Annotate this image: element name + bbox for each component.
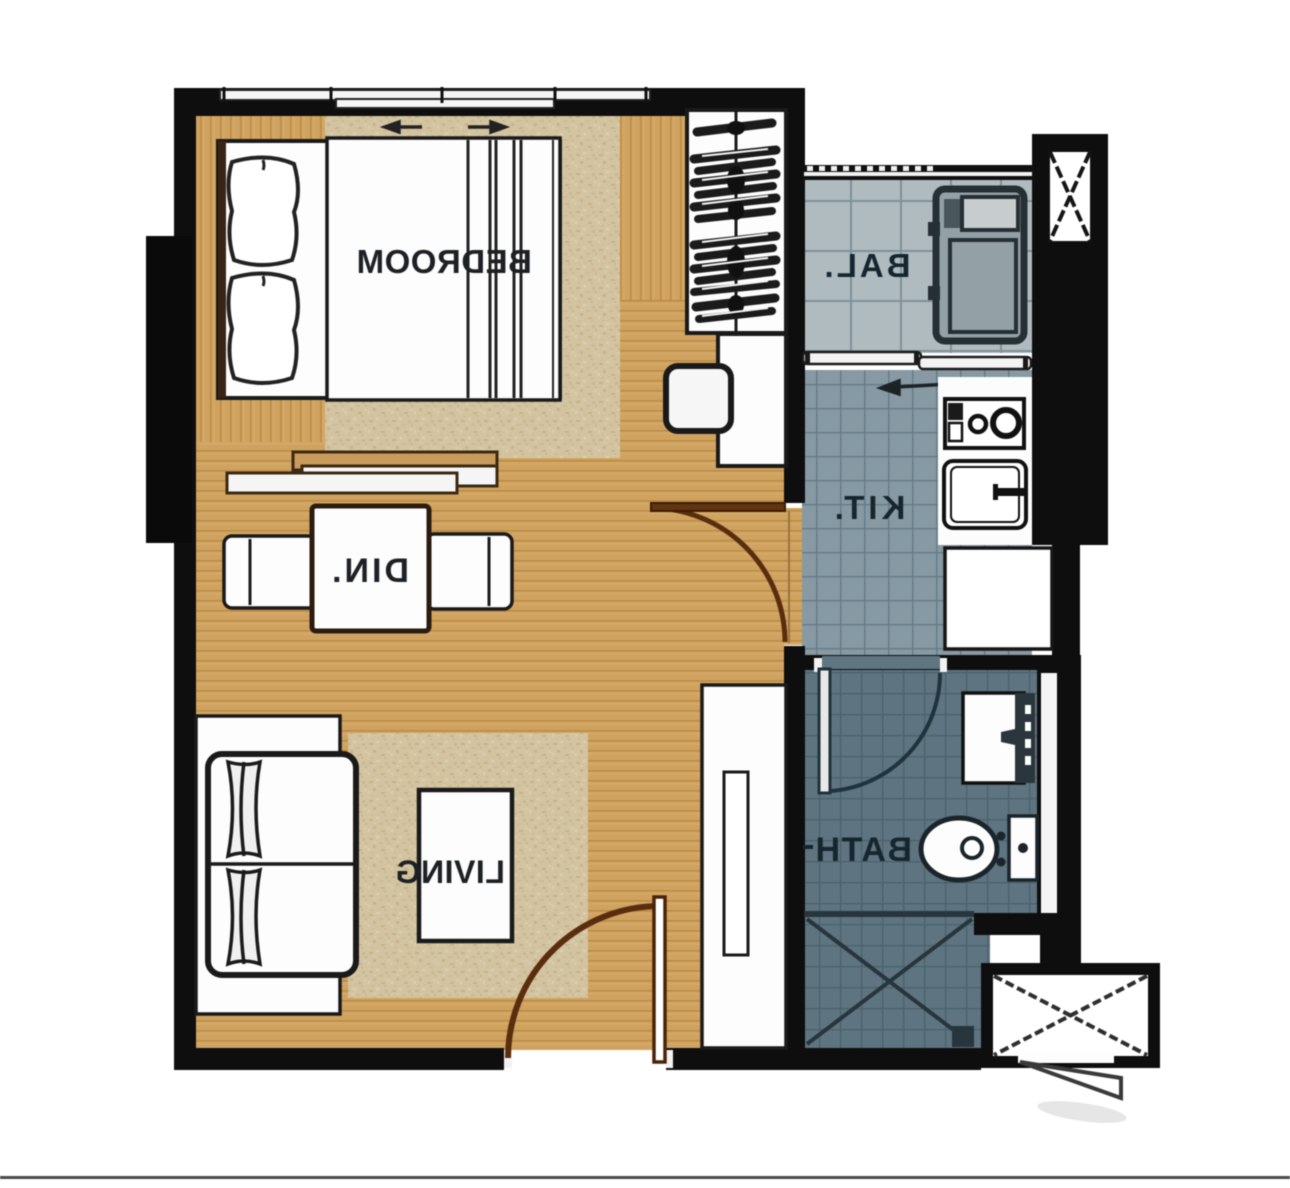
svg-text:BEDROOM: BEDROOM — [356, 243, 532, 280]
svg-text:KIT.: KIT. — [831, 489, 906, 526]
svg-text:DIN.: DIN. — [329, 552, 409, 590]
svg-text:BATH: BATH — [814, 831, 912, 869]
svg-text:LIVING: LIVING — [395, 854, 505, 890]
svg-text:BAL.: BAL. — [822, 247, 911, 284]
